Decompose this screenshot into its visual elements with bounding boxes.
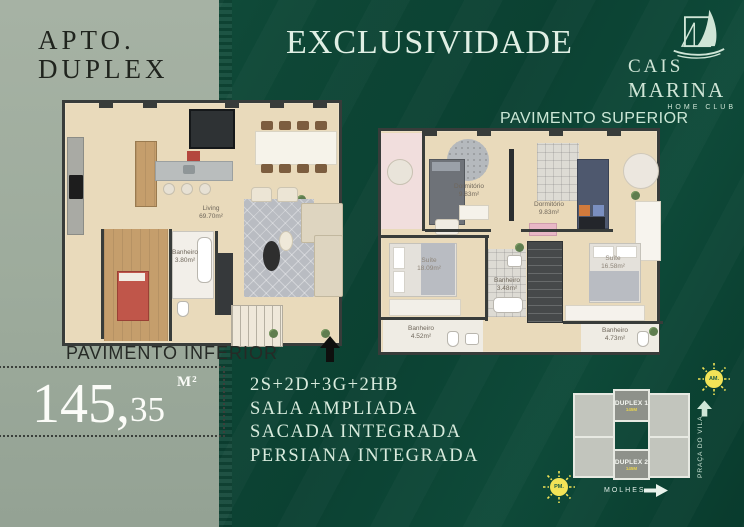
sitemap-duplex1: DUPLEX 1 145M [613,389,650,422]
sitemap-block-left [573,393,615,478]
sitemap-block-divider [575,436,613,438]
logo-cais: CAIS [628,56,736,78]
duplex1-sub: 145M [626,407,637,412]
dining-chair [297,121,309,130]
wall [549,129,563,136]
stove-cooktop [69,175,83,199]
area-unit: M² [177,374,198,391]
coffee-table [263,241,280,271]
area-badge: 145, 35 M² [0,366,225,437]
dining-chair [261,121,273,130]
sink [507,255,522,267]
brand-logo: CAIS MARINA HOME CLUB [628,6,736,111]
duplex1-label: DUPLEX 1 [615,400,648,407]
north-arrow-icon [697,400,712,417]
room-label-living: Living 69.70m² [193,205,229,221]
wall [99,101,113,108]
features-list: 2S+2D+3G+2HB SALA AMPLIADA SACADA INTEGR… [250,374,479,468]
apto-line2: DUPLEX [38,55,169,84]
room-label-suite2: Suíte 16.58m² [593,255,633,271]
street-praca-do-vila: PRAÇA DO VILA [697,422,704,478]
bed-pillow [393,247,405,269]
room-label-banheiro3: Banheiro 4.73m² [597,327,633,343]
dining-chair [261,164,273,173]
wall [422,131,425,231]
dining-chair [315,164,327,173]
room-label-banheiro1: Banheiro 3.48m² [489,277,525,293]
kitchen-island-wood [135,141,157,207]
tiled-rug [537,143,579,201]
side-table [279,231,293,251]
molhes-arrow-icon [644,484,668,497]
room-label-dormitorio2: Dormitório 9.83m² [527,201,571,217]
area-decimals: 35 [130,385,165,435]
feature-sacada: SACADA INTEGRADA [250,421,479,445]
flyer-canvas: APTO. DUPLEX EXCLUSIVIDADE CAIS MARINA H… [0,0,744,527]
plant [269,329,278,338]
wall [143,101,157,108]
bar-stool [199,183,211,195]
wardrobe [389,299,461,316]
round-chair [387,159,413,185]
wall [225,101,239,108]
bed-blanket [589,271,639,301]
tv-panel [509,149,514,221]
sitemap-duplex2: DUPLEX 2 145M [613,449,650,480]
sun-am-label: AM. [709,376,719,382]
fridge-cabinet-block [189,109,235,149]
feature-config: 2S+2D+3G+2HB [250,374,479,398]
sink [465,333,479,345]
shelf-long [565,305,645,321]
plan-superior-label: PAVIMENTO SUPERIOR [500,110,689,128]
armchair [435,219,459,235]
area-value: 145, [32,373,130,435]
sofa [314,235,343,297]
duplex2-sub: 145M [626,466,637,471]
feature-persiana: PERSIANA INTEGRADA [250,445,479,469]
armchair [251,187,272,202]
room-label-banheiro-inferior: Banheiro 3.80m² [170,249,200,265]
bed-pillow [119,273,145,281]
bed-base-dark [579,217,605,229]
bar-stool [163,183,175,195]
bed-pillow [432,162,460,171]
sailboat-icon [666,6,730,62]
page-title: EXCLUSIVIDADE [286,24,573,62]
sitemap-block-divider [650,436,688,438]
floorplan-inferior: Banheiro 3.80m² Living 69.70m² [62,100,342,346]
plant [515,243,524,252]
wall [425,229,491,232]
sun-pm-icon: PM. [542,470,576,504]
feature-sala: SALA AMPLIADA [250,398,479,422]
kitchen-sink [183,165,195,174]
apartment-type-heading: APTO. DUPLEX [38,26,169,84]
logo-marina: MARINA [628,78,736,103]
room-label-dormitorio1: Dormitório 9.83m² [447,183,491,199]
stairs [231,305,283,347]
dresser-white [459,205,489,220]
toilet [637,331,649,347]
plan-inferior-label: PAVIMENTO INFERIOR [66,343,278,364]
round-lounge-chair [623,153,659,189]
dining-chair [279,164,291,173]
dining-chair [315,121,327,130]
wall [477,129,491,136]
wall [607,129,621,136]
room-label-banheiro2: Banheiro 4.52m² [403,325,439,341]
floorplan-superior: Dormitório 9.83m² Dormitório 9.83m² [378,128,660,355]
dining-chair [279,121,291,130]
bar-stool [181,183,193,195]
pillow-blue [593,205,604,216]
pillow-orange [579,205,590,216]
wall [313,101,327,108]
sun-am-icon: AM. [697,362,731,396]
armchair [277,187,298,202]
stairs-dark [527,241,563,323]
dining-chair [297,164,309,173]
bed-pillow [393,271,405,293]
toilet [447,331,459,347]
street-molhes: MOLHES [604,487,646,494]
dining-table [255,131,337,165]
duplex2-label: DUPLEX 2 [615,459,648,466]
apto-line1: APTO. [38,26,169,55]
plant [649,327,658,336]
room-label-suite1: Suíte 18.09m² [409,257,449,273]
toilet [177,301,189,317]
sitemap-block-right [648,393,690,478]
entry-arrow-icon [320,336,340,362]
wall [270,101,284,108]
wall [381,235,489,238]
bathtub [493,297,523,313]
wall [423,129,437,136]
sun-pm-label: PM. [554,484,564,490]
plant [631,191,640,200]
wall [521,229,613,232]
